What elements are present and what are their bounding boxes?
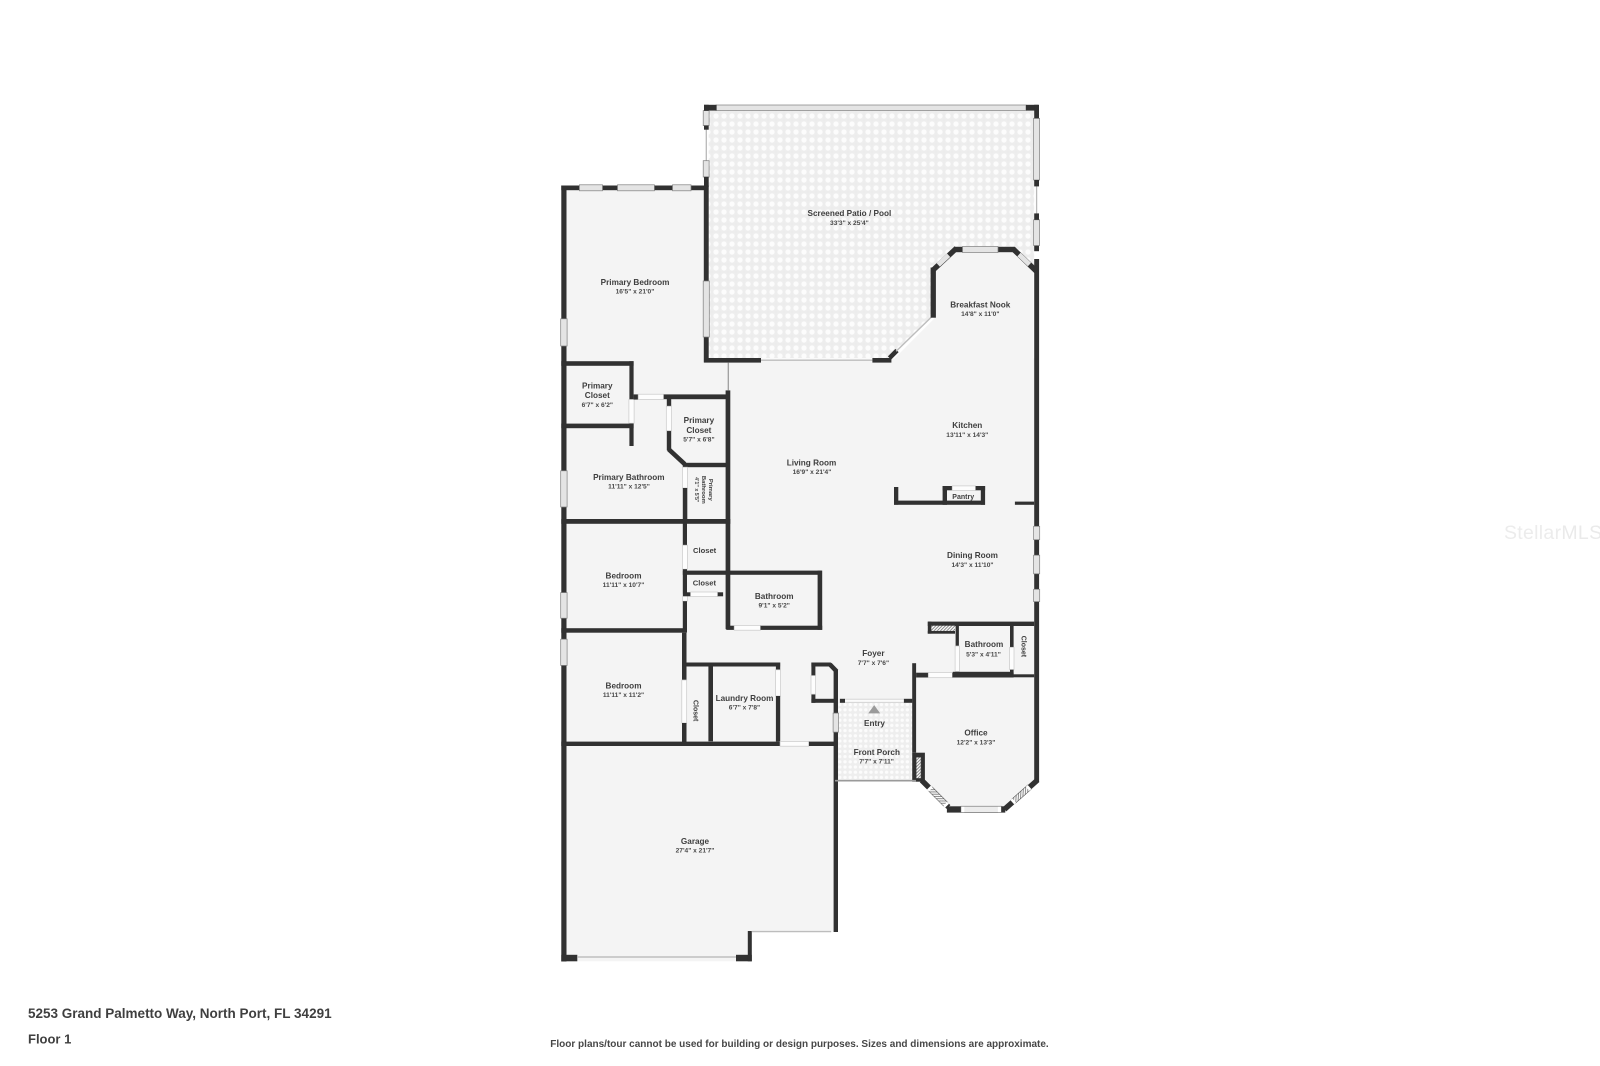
svg-text:Floor 1: Floor 1 <box>28 1032 71 1047</box>
svg-text:Front Porch: Front Porch <box>854 748 900 757</box>
svg-text:Entry: Entry <box>864 719 885 728</box>
svg-text:5253 Grand Palmetto Way, North: 5253 Grand Palmetto Way, North Port, FL … <box>28 1006 332 1021</box>
svg-text:11'11" x 10'7": 11'11" x 10'7" <box>603 582 645 589</box>
svg-text:11'11" x 12'5": 11'11" x 12'5" <box>608 484 650 491</box>
svg-text:Dining Room: Dining Room <box>947 551 998 560</box>
svg-text:Living Room: Living Room <box>787 458 837 467</box>
svg-text:5'3" x 4'11": 5'3" x 4'11" <box>966 651 1001 658</box>
svg-text:Closet: Closet <box>1020 636 1027 658</box>
svg-text:Bathroom: Bathroom <box>700 476 706 504</box>
svg-text:16'5" x 21'0": 16'5" x 21'0" <box>616 288 655 295</box>
svg-text:Pantry: Pantry <box>952 494 974 501</box>
svg-text:Primary: Primary <box>684 416 715 425</box>
svg-text:33'3" x 25'4": 33'3" x 25'4" <box>830 220 869 227</box>
svg-text:Bedroom: Bedroom <box>606 572 642 581</box>
svg-text:11'11" x 11'2": 11'11" x 11'2" <box>603 692 644 699</box>
svg-text:4'1" x 5'5": 4'1" x 5'5" <box>693 477 699 503</box>
svg-text:StellarMLS: StellarMLS <box>1504 522 1600 544</box>
svg-text:Closet: Closet <box>686 426 711 435</box>
svg-text:Bathroom: Bathroom <box>755 592 794 601</box>
svg-text:6'7" x 7'8": 6'7" x 7'8" <box>729 705 760 712</box>
svg-text:9'1" x 5'2": 9'1" x 5'2" <box>759 602 790 609</box>
svg-text:Closet: Closet <box>691 700 698 722</box>
svg-text:12'2" x 13'3": 12'2" x 13'3" <box>957 739 996 746</box>
svg-text:Closet: Closet <box>693 546 717 555</box>
svg-text:27'4" x 21'7": 27'4" x 21'7" <box>676 848 715 855</box>
svg-text:Closet: Closet <box>585 391 610 400</box>
svg-text:Closet: Closet <box>693 579 717 588</box>
svg-text:Kitchen: Kitchen <box>952 421 982 430</box>
svg-text:Garage: Garage <box>681 837 710 846</box>
svg-text:Primary Bathroom: Primary Bathroom <box>593 473 664 482</box>
svg-text:Floor plans/tour cannot be use: Floor plans/tour cannot be used for buil… <box>550 1039 1049 1050</box>
svg-text:Bathroom: Bathroom <box>965 640 1004 649</box>
svg-text:7'7" x 7'11": 7'7" x 7'11" <box>859 759 894 766</box>
svg-text:16'9" x 21'4": 16'9" x 21'4" <box>793 469 832 476</box>
svg-text:14'3" x 11'10": 14'3" x 11'10" <box>951 562 993 569</box>
svg-text:Bedroom: Bedroom <box>606 681 642 690</box>
svg-text:14'8" x 11'0": 14'8" x 11'0" <box>961 311 999 318</box>
svg-text:Screened Patio / Pool: Screened Patio / Pool <box>808 209 892 218</box>
svg-text:Primary: Primary <box>582 381 613 390</box>
svg-text:Office: Office <box>964 729 988 738</box>
svg-text:Primary: Primary <box>707 479 713 502</box>
svg-text:7'7" x 7'6": 7'7" x 7'6" <box>858 660 889 667</box>
svg-text:Primary Bedroom: Primary Bedroom <box>601 278 670 287</box>
svg-text:Foyer: Foyer <box>862 649 885 658</box>
svg-text:13'11" x 14'3": 13'11" x 14'3" <box>946 432 988 439</box>
svg-text:Breakfast Nook: Breakfast Nook <box>950 301 1011 310</box>
svg-text:6'7" x 6'2": 6'7" x 6'2" <box>582 402 613 409</box>
svg-text:5'7" x 6'8": 5'7" x 6'8" <box>683 437 714 444</box>
svg-text:Laundry Room: Laundry Room <box>716 694 774 703</box>
